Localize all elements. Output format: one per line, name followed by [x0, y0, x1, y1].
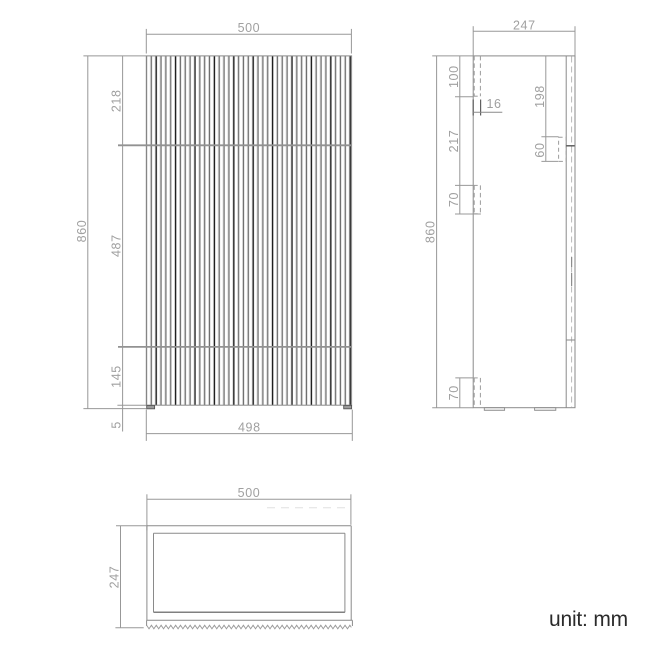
svg-text:217: 217: [447, 130, 461, 153]
svg-text:247: 247: [108, 566, 122, 589]
svg-text:860: 860: [75, 220, 89, 243]
svg-text:60: 60: [533, 142, 547, 157]
svg-text:247: 247: [513, 18, 536, 32]
svg-text:500: 500: [238, 21, 261, 35]
svg-text:498: 498: [238, 420, 261, 434]
svg-text:218: 218: [109, 89, 123, 112]
svg-text:16: 16: [486, 97, 501, 111]
svg-text:198: 198: [533, 85, 547, 108]
svg-text:70: 70: [447, 385, 461, 400]
svg-text:70: 70: [447, 192, 461, 207]
svg-text:5: 5: [109, 421, 123, 429]
svg-text:487: 487: [109, 234, 123, 257]
svg-text:500: 500: [238, 486, 261, 500]
svg-text:145: 145: [109, 365, 123, 388]
svg-text:100: 100: [447, 65, 461, 88]
svg-text:860: 860: [424, 220, 438, 243]
